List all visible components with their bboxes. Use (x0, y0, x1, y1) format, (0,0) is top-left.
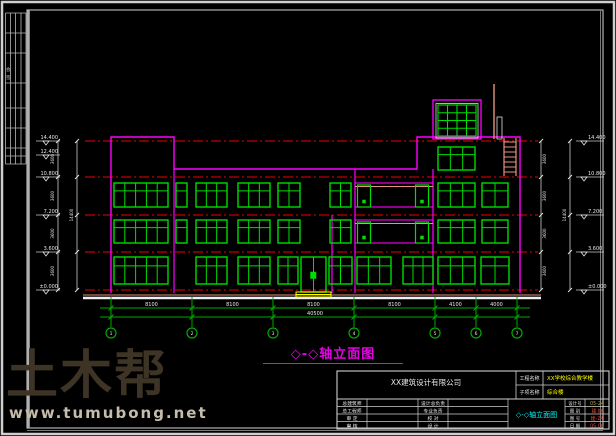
svg-text:审 定: 审 定 (346, 415, 357, 422)
window-bank (438, 257, 475, 284)
window-bank (114, 220, 168, 243)
svg-text:◇-◇轴立面图: ◇-◇轴立面图 (516, 410, 557, 419)
svg-text:3600: 3600 (50, 228, 55, 239)
svg-text:14.400: 14.400 (588, 135, 606, 141)
window-bank (176, 183, 187, 207)
svg-text:8100: 8100 (388, 302, 401, 308)
svg-text:4: 4 (353, 331, 356, 337)
svg-text:±0.000: ±0.000 (588, 284, 607, 290)
svg-text:2: 2 (191, 331, 194, 337)
svg-text:签: 签 (6, 74, 11, 81)
svg-text:专业负责: 专业负责 (423, 407, 442, 414)
window-row-floor-2 (114, 220, 508, 243)
svg-text:3600: 3600 (542, 265, 547, 276)
window-row-floor-4 (438, 147, 475, 170)
entrance-steps (296, 292, 331, 297)
window-bank (403, 257, 433, 284)
svg-text:图 号: 图 号 (570, 416, 581, 422)
roof-flagpole (494, 84, 502, 139)
svg-text:6: 6 (475, 331, 478, 337)
window-bank (330, 220, 351, 243)
window-bank (176, 220, 187, 243)
window-row-floor-1 (114, 257, 509, 284)
svg-text:05-24: 05-24 (590, 401, 604, 407)
svg-text:子项名称: 子项名称 (519, 389, 539, 396)
svg-text:4000: 4000 (490, 302, 503, 308)
svg-text:设 计: 设 计 (427, 422, 438, 429)
svg-text:±0.000: ±0.000 (39, 284, 58, 290)
window-bank (278, 257, 298, 284)
svg-text:14400: 14400 (562, 208, 567, 221)
signoff-strip: 会签 (6, 13, 27, 164)
svg-text:日 期: 日 期 (570, 423, 581, 429)
svg-text:设计总负责: 设计总负责 (421, 400, 445, 407)
window-bank (238, 183, 270, 207)
window-bank (278, 183, 300, 207)
window-bank (482, 220, 508, 243)
svg-text:7: 7 (516, 331, 519, 337)
svg-text:10.800: 10.800 (41, 171, 59, 177)
svg-text:3.600: 3.600 (44, 246, 58, 252)
svg-text:3600: 3600 (542, 190, 547, 201)
window-bank (357, 257, 391, 284)
cad-sheet: 会签12345678100810081008100410040004050014… (0, 0, 616, 436)
window-bank (196, 257, 227, 284)
svg-text:设计号: 设计号 (568, 400, 582, 407)
svg-text:7.200: 7.200 (44, 209, 58, 215)
window-bank (482, 183, 508, 207)
svg-text:建 施: 建 施 (591, 407, 602, 414)
window-bank (278, 220, 300, 243)
svg-text:3: 3 (272, 331, 275, 337)
entrance-door (301, 257, 326, 292)
svg-text:40500: 40500 (307, 311, 323, 317)
roof-enclosure (433, 100, 481, 139)
window-bank (114, 183, 168, 207)
svg-text:3600: 3600 (50, 265, 55, 276)
window-bank (196, 183, 227, 207)
svg-text:图 别: 图 别 (570, 407, 580, 414)
svg-text:工程名称: 工程名称 (519, 375, 539, 382)
svg-text:综合楼: 综合楼 (547, 388, 564, 396)
roof-ladder (504, 138, 516, 176)
svg-text:XX建筑设计有限公司: XX建筑设计有限公司 (391, 377, 461, 387)
svg-text:会: 会 (6, 66, 11, 73)
watermark-url: www.tumubong.net (9, 404, 208, 422)
svg-text:建-24: 建-24 (591, 415, 604, 422)
title-block: XX建筑设计有限公司工程名称XX学校综合教学楼子项名称综合楼总建筑师设计总负责总… (337, 371, 609, 429)
level-lines (85, 141, 538, 290)
svg-text:7.200: 7.200 (588, 209, 602, 215)
window-bank (330, 183, 351, 207)
window-bank (438, 183, 475, 207)
svg-text:5: 5 (434, 331, 437, 337)
svg-text:审 核: 审 核 (346, 422, 357, 429)
window-row-floor-3 (114, 183, 508, 207)
window-bank (114, 257, 168, 284)
window-bank (238, 257, 270, 284)
svg-text:校 对: 校 对 (427, 415, 438, 422)
bottom-dimensions: 81008100810081004100400040500 (100, 302, 530, 320)
svg-text:14400: 14400 (69, 208, 74, 221)
corridor-balcony (355, 183, 433, 207)
svg-text:3600: 3600 (542, 153, 547, 164)
svg-text:XX学校综合教学楼: XX学校综合教学楼 (547, 374, 594, 382)
svg-text:8100: 8100 (307, 302, 320, 308)
watermark-brand: 土木帮 (6, 350, 168, 402)
window-bank (438, 220, 475, 243)
svg-text:3600: 3600 (542, 228, 547, 239)
drawing-caption: ◇-◇轴立面图 (263, 343, 403, 364)
svg-text:8100: 8100 (226, 302, 239, 308)
svg-text:10.800: 10.800 (588, 171, 606, 177)
svg-text:总建筑师: 总建筑师 (342, 400, 361, 407)
svg-text:3600: 3600 (50, 153, 55, 164)
window-bank (438, 147, 475, 170)
svg-text:4100: 4100 (449, 302, 462, 308)
svg-text:总工程师: 总工程师 (342, 407, 361, 414)
svg-text:8100: 8100 (145, 302, 158, 308)
window-bank (481, 257, 509, 284)
svg-text:1: 1 (110, 331, 113, 337)
corridor-balcony (355, 220, 433, 243)
svg-text:3.600: 3.600 (588, 246, 602, 252)
svg-text:3600: 3600 (50, 190, 55, 201)
svg-text:14.400: 14.400 (41, 135, 59, 141)
window-bank (238, 220, 270, 243)
svg-text:05.06: 05.06 (590, 423, 604, 429)
window-bank (196, 220, 227, 243)
